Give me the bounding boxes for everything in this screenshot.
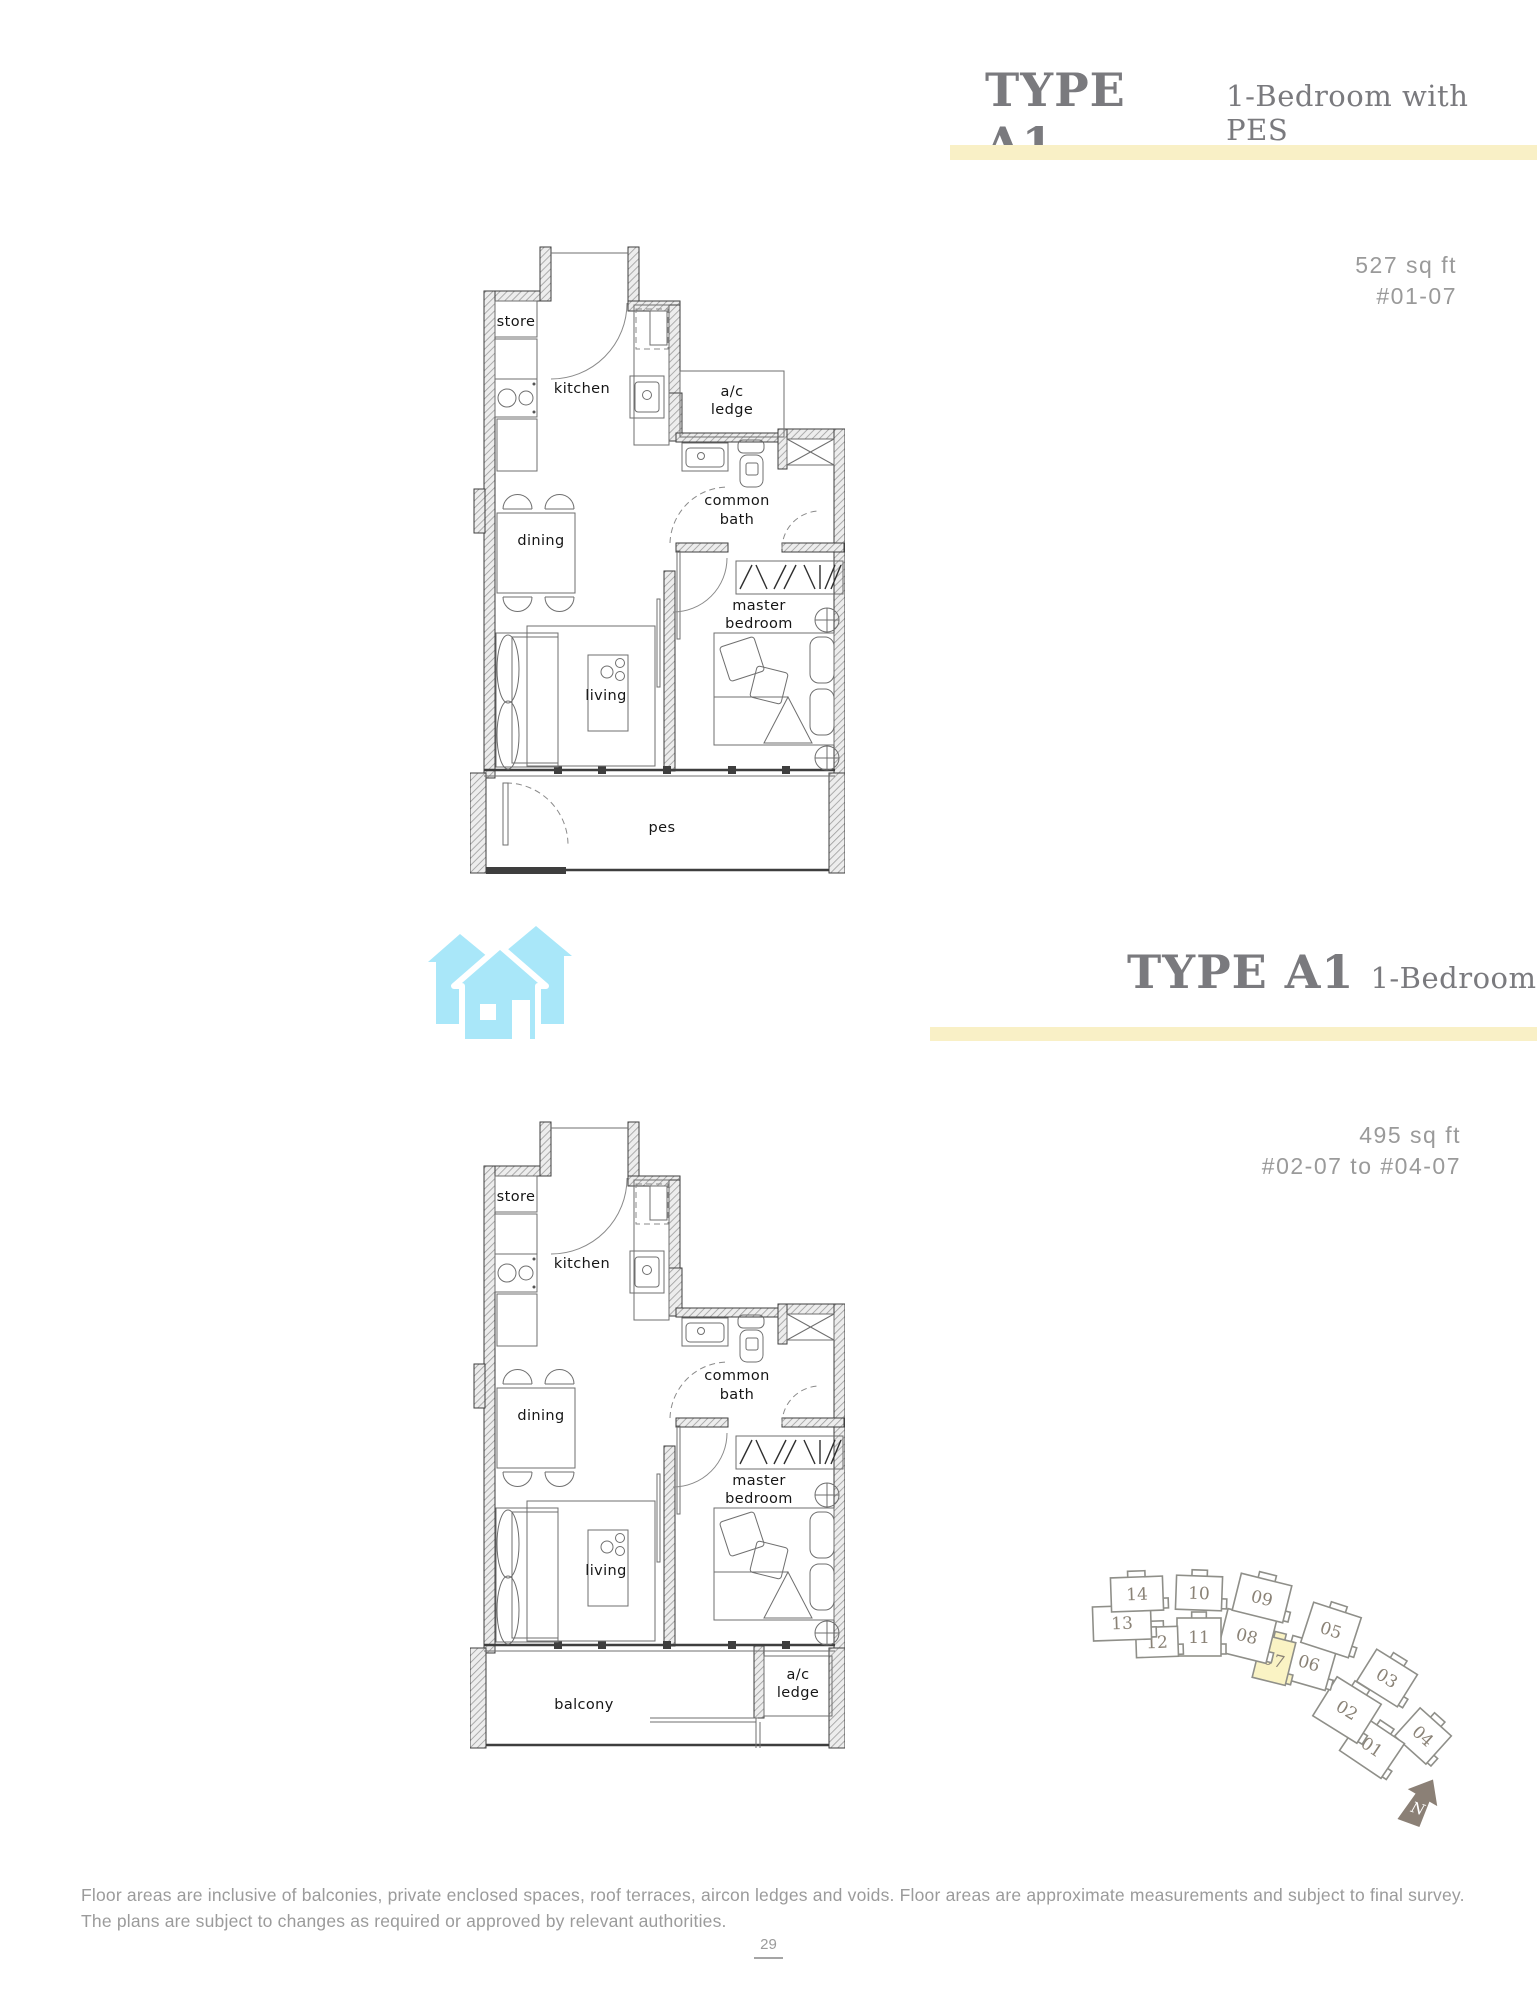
area-units-bottom: #02-07 to #04-07 <box>1262 1151 1461 1182</box>
area-units-top: #01-07 <box>1355 281 1457 312</box>
houses-icon <box>424 920 576 1042</box>
room-label-kitchen: kitchen <box>554 381 610 397</box>
room-label-bath-1-2: common <box>704 1368 770 1384</box>
svg-text:11: 11 <box>1188 1628 1210 1648</box>
room-label-ac-2: ledge <box>711 402 753 418</box>
brochure-page: { "header_top": { "type": "TYPE A1", "su… <box>0 0 1537 2000</box>
room-label-ac-1-2: a/c <box>787 1667 810 1683</box>
site-unit-10: 10 <box>1175 1569 1227 1611</box>
room-label-bath-2: bath <box>720 512 755 528</box>
type-subtitle-top: 1-Bedroom with PES <box>1226 79 1537 147</box>
room-label-dining: dining <box>517 533 564 549</box>
disclaimer-text: Floor areas are inclusive of balconies, … <box>81 1882 1493 1934</box>
plan2-wardrobe <box>736 1436 843 1469</box>
room-label-kitchen-2: kitchen <box>554 1256 610 1272</box>
room-label-dining-2: dining <box>517 1408 564 1424</box>
accent-band-top <box>950 145 1537 160</box>
plan1-bed <box>714 608 839 770</box>
page-number-wrap: 29 <box>0 1936 1537 1954</box>
room-label-ac-1: a/c <box>721 384 744 400</box>
svg-text:10: 10 <box>1188 1584 1210 1605</box>
plan1-wardrobe <box>736 561 843 594</box>
area-info-top: 527 sq ft #01-07 <box>1355 250 1457 312</box>
plan2-shower <box>787 1314 834 1340</box>
svg-text:13: 13 <box>1111 1614 1133 1635</box>
plan2-bed <box>714 1483 839 1645</box>
plan2-bath-fixtures <box>682 1315 764 1362</box>
room-label-pes: pes <box>649 820 676 836</box>
accent-band-bottom <box>930 1027 1537 1041</box>
type-label-bottom: TYPE A1 <box>1127 945 1354 999</box>
room-label-ac-2-2: ledge <box>777 1685 819 1701</box>
room-label-living: living <box>585 688 626 704</box>
room-label-master-1: master <box>732 598 786 614</box>
room-label-balcony: balcony <box>554 1697 614 1713</box>
site-unit-14: 14 <box>1110 1570 1168 1612</box>
room-label-master-2: bedroom <box>725 616 793 632</box>
plan2-dining-set <box>497 1370 575 1487</box>
room-label-bath-1: common <box>704 493 770 509</box>
plan1-dining-set <box>497 495 575 612</box>
area-sqft-bottom: 495 sq ft <box>1262 1120 1461 1151</box>
header-bottom: TYPE A1 1-Bedroom <box>1127 945 1537 999</box>
floor-plan-2: store kitchen common bath dining master … <box>470 1118 845 1758</box>
site-unit-04: 04 <box>1395 1703 1459 1767</box>
svg-text:14: 14 <box>1126 1585 1148 1606</box>
plan2-living-furniture <box>496 1426 680 1644</box>
plan1-living-furniture <box>496 551 680 769</box>
site-map-svg: 0401020306070508111213091014 N <box>1068 1556 1498 1846</box>
floor-plan-1: store kitchen a/c ledge common bath dini… <box>470 243 845 883</box>
plan1-shower <box>787 439 834 465</box>
page-number: 29 <box>754 1936 783 1959</box>
room-label-living-2: living <box>585 1563 626 1579</box>
plan1-door-arcs <box>503 303 820 845</box>
room-label-store: store <box>497 314 536 330</box>
room-label-store-2: store <box>497 1189 536 1205</box>
area-info-bottom: 495 sq ft #02-07 to #04-07 <box>1262 1120 1461 1182</box>
north-arrow-icon: N <box>1392 1771 1447 1833</box>
room-label-bath-2-2: bath <box>720 1387 755 1403</box>
area-sqft-top: 527 sq ft <box>1355 250 1457 281</box>
plan1-walls <box>470 247 845 873</box>
room-label-master-2-2: bedroom <box>725 1491 793 1507</box>
room-label-master-1-2: master <box>732 1473 786 1489</box>
site-unit-11: 11 <box>1177 1612 1226 1656</box>
type-subtitle-bottom: 1-Bedroom <box>1370 961 1536 995</box>
plan1-bath-fixtures <box>682 440 764 487</box>
plan2-walls <box>470 1122 845 1748</box>
